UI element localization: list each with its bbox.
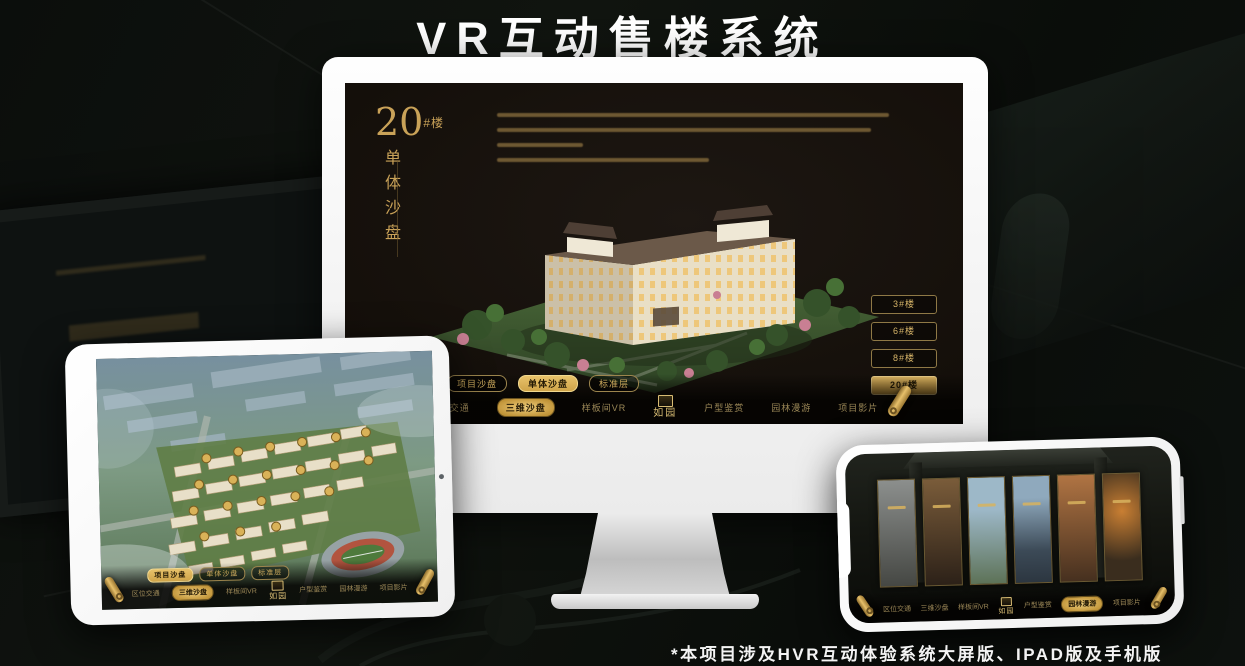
nav-location-traffic[interactable]: 区位交通 xyxy=(883,604,911,615)
tablet-screen: 项目沙盘 单体沙盘 标准层 区位交通 三维沙盘 样板间VR 如园 户型鉴赏 园林… xyxy=(96,351,438,610)
building-description-lines xyxy=(497,113,889,173)
tab-project-sandtable[interactable]: 项目沙盘 xyxy=(147,568,193,583)
phone-side-button xyxy=(1179,476,1184,524)
floor-button-6[interactable]: 6#楼 xyxy=(871,322,937,341)
brand-seal-icon xyxy=(658,395,673,407)
tab-standard-floor[interactable]: 标准层 xyxy=(251,565,289,580)
tab-single-sandtable[interactable]: 单体沙盘 xyxy=(518,375,578,392)
tablet-device: 项目沙盘 单体沙盘 标准层 区位交通 三维沙盘 样板间VR 如园 户型鉴赏 园林… xyxy=(65,335,456,625)
nav-3d-sandtable[interactable]: 三维沙盘 xyxy=(497,398,555,417)
nav-location-traffic[interactable]: 区位交通 xyxy=(132,588,160,599)
scene-panel[interactable] xyxy=(1102,472,1143,581)
sandtable-tab-group: 项目沙盘 单体沙盘 标准层 xyxy=(447,375,639,392)
floor-button-8[interactable]: 8#楼 xyxy=(871,349,937,368)
brand-seal-icon xyxy=(1001,597,1012,606)
phone-screen: 区位交通 三维沙盘 样板间VR 如园 户型鉴赏 园林漫游 项目影片 xyxy=(845,445,1176,623)
brand-logo: 如园 xyxy=(998,597,1014,615)
nav-garden-roam[interactable]: 园林漫游 xyxy=(1061,595,1103,612)
tab-project-sandtable[interactable]: 项目沙盘 xyxy=(447,375,507,392)
scene-panel[interactable] xyxy=(1012,475,1053,584)
scene-panel[interactable] xyxy=(1057,474,1098,583)
monitor-stand-base xyxy=(551,594,759,609)
nav-3d-sandtable[interactable]: 三维沙盘 xyxy=(172,584,214,601)
nav-project-film[interactable]: 项目影片 xyxy=(379,582,407,593)
nav-garden-roam[interactable]: 园林漫游 xyxy=(771,401,811,414)
phone-device: 区位交通 三维沙盘 样板间VR 如园 户型鉴赏 园林漫游 项目影片 xyxy=(835,436,1184,633)
nav-3d-sandtable[interactable]: 三维沙盘 xyxy=(920,603,948,614)
brand-logo: 如园 xyxy=(653,395,677,419)
tab-single-sandtable[interactable]: 单体沙盘 xyxy=(199,566,245,581)
brand-logo: 如园 xyxy=(269,580,287,600)
building-render[interactable] xyxy=(417,175,891,407)
nav-floorplan[interactable]: 户型鉴赏 xyxy=(1024,600,1052,611)
building-number-suffix: #楼 xyxy=(423,116,444,130)
building-number: 20 xyxy=(375,100,423,144)
courtyard-beam xyxy=(903,447,1113,469)
tablet-camera xyxy=(439,474,444,479)
nav-floorplan[interactable]: 户型鉴赏 xyxy=(704,401,744,414)
brand-seal-icon xyxy=(272,580,284,590)
scene-panel[interactable] xyxy=(877,479,918,588)
nav-garden-roam[interactable]: 园林漫游 xyxy=(339,583,367,594)
monitor-stand xyxy=(580,513,730,597)
scene-panel[interactable] xyxy=(922,477,963,586)
footnote-text: *本项目涉及HVR互动体验系统大屏版、IPAD版及手机版 xyxy=(671,640,1163,665)
floor-button-3[interactable]: 3#楼 xyxy=(871,295,937,314)
subtitle-rule xyxy=(397,161,398,257)
scene-panel-strip xyxy=(877,472,1143,587)
phone-notch xyxy=(837,501,851,577)
nav-showroom-vr[interactable]: 样板间VR xyxy=(226,586,257,597)
scene-panel[interactable] xyxy=(967,476,1008,585)
promo-canvas: VR互动售楼系统 20#楼 单体沙盘 xyxy=(0,0,1245,666)
nav-project-film[interactable]: 项目影片 xyxy=(1113,597,1141,608)
building-subtitle: 单体沙盘 xyxy=(379,149,403,249)
nav-showroom-vr[interactable]: 样板间VR xyxy=(582,401,627,414)
nav-floorplan[interactable]: 户型鉴赏 xyxy=(299,584,327,595)
tab-standard-floor[interactable]: 标准层 xyxy=(589,375,639,392)
nav-project-film[interactable]: 项目影片 xyxy=(838,401,878,414)
nav-showroom-vr[interactable]: 样板间VR xyxy=(958,602,989,613)
